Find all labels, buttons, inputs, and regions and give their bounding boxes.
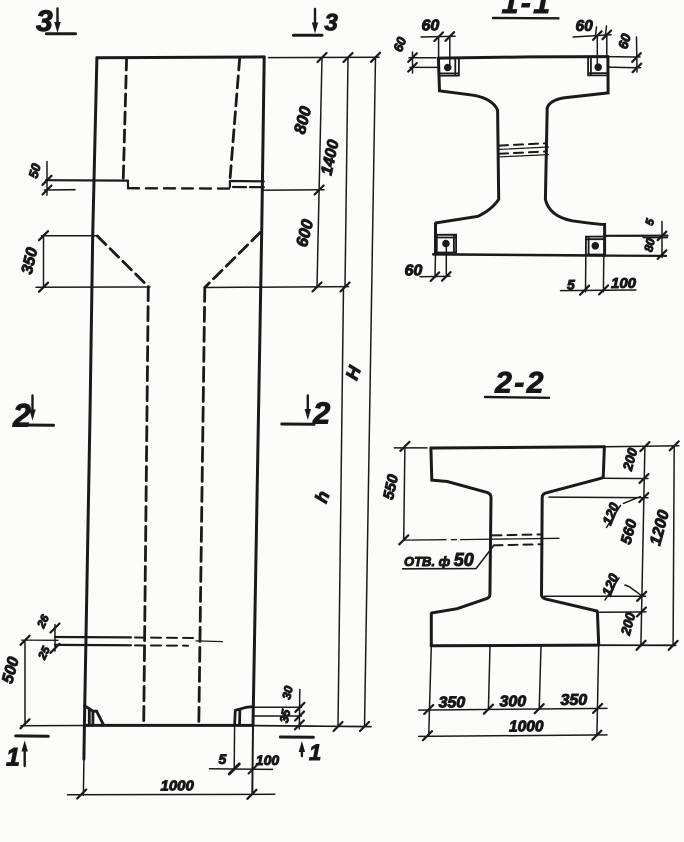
- svg-text:80: 80: [641, 237, 658, 253]
- svg-text:ОТВ. ф 50: ОТВ. ф 50: [404, 550, 474, 570]
- svg-text:25: 25: [36, 644, 53, 662]
- svg-text:350: 350: [439, 695, 466, 712]
- svg-text:H: H: [342, 362, 366, 382]
- svg-text:550: 550: [380, 472, 402, 501]
- svg-text:2-2: 2-2: [494, 367, 546, 400]
- svg-text:2: 2: [312, 396, 330, 431]
- svg-text:1: 1: [6, 744, 20, 772]
- svg-text:120: 120: [599, 571, 622, 598]
- svg-text:26: 26: [35, 613, 52, 631]
- svg-text:30: 30: [279, 684, 296, 700]
- svg-text:35: 35: [277, 708, 294, 724]
- svg-text:3: 3: [325, 10, 339, 37]
- svg-text:5: 5: [219, 751, 227, 767]
- svg-text:h: h: [311, 488, 334, 505]
- svg-text:1000: 1000: [161, 778, 195, 795]
- svg-text:60: 60: [576, 18, 594, 35]
- svg-text:1400: 1400: [319, 138, 343, 176]
- svg-text:60: 60: [615, 32, 634, 51]
- svg-text:200: 200: [618, 611, 639, 638]
- svg-text:600: 600: [293, 217, 317, 249]
- svg-text:1200: 1200: [647, 508, 673, 547]
- svg-text:2: 2: [12, 398, 31, 434]
- svg-text:100: 100: [611, 275, 637, 292]
- svg-text:1: 1: [309, 740, 321, 765]
- svg-text:5: 5: [567, 277, 575, 293]
- svg-text:60: 60: [390, 34, 409, 53]
- svg-text:100: 100: [256, 752, 280, 768]
- svg-text:120: 120: [600, 500, 623, 527]
- svg-text:200: 200: [620, 446, 641, 473]
- svg-text:350: 350: [19, 246, 42, 276]
- svg-text:300: 300: [500, 694, 527, 711]
- svg-text:50: 50: [26, 161, 44, 180]
- svg-text:800: 800: [291, 104, 315, 136]
- svg-text:560: 560: [618, 517, 641, 546]
- svg-text:350: 350: [561, 692, 588, 709]
- svg-text:1000: 1000: [509, 718, 544, 735]
- svg-text:60: 60: [422, 18, 440, 35]
- svg-text:5: 5: [644, 217, 657, 227]
- svg-text:500: 500: [0, 655, 23, 685]
- svg-text:60: 60: [405, 263, 423, 280]
